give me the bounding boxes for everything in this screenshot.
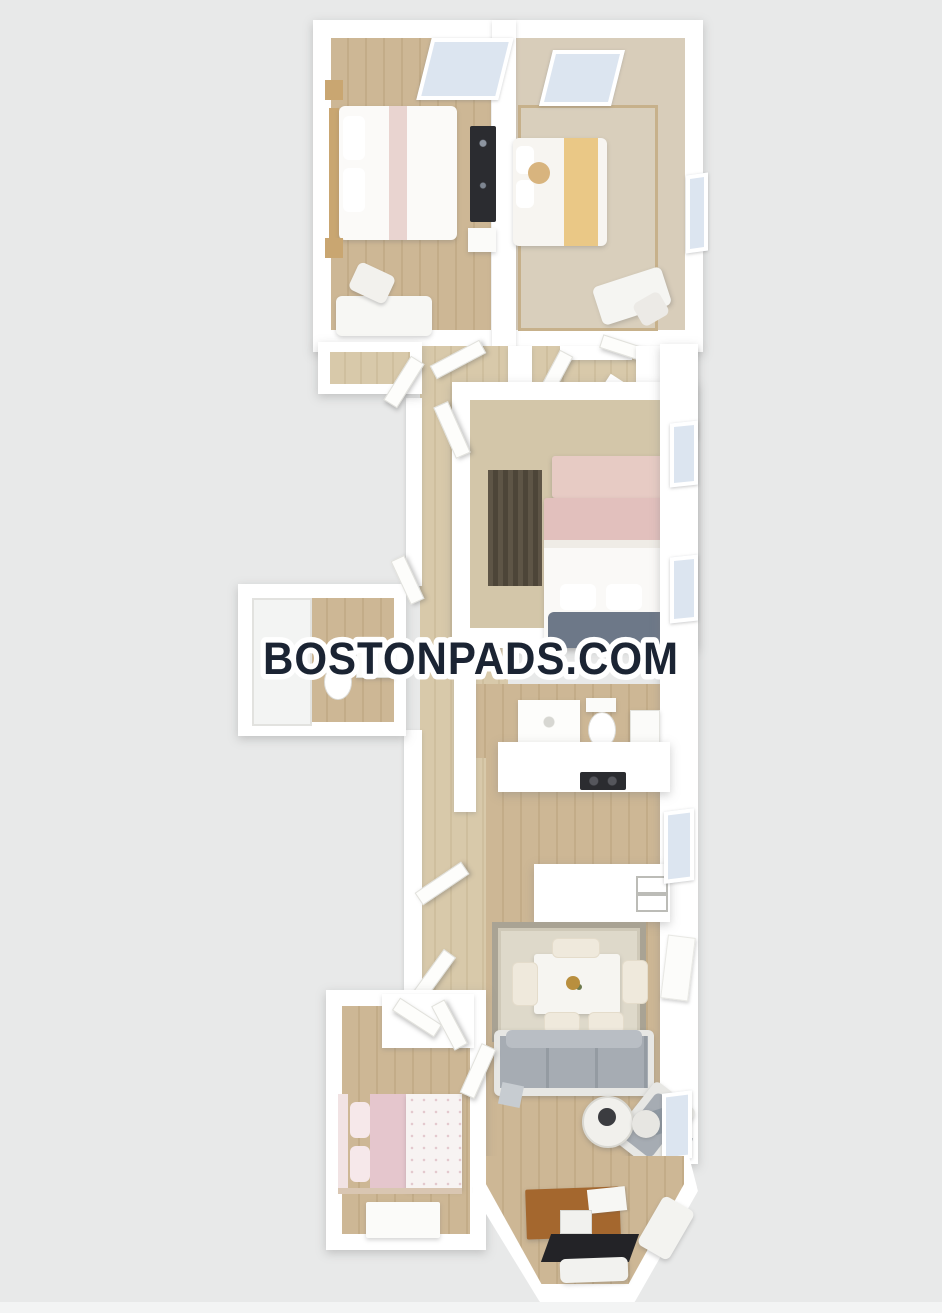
- bedroom3-dark-closet: [488, 470, 542, 586]
- nightstand: [325, 238, 343, 258]
- bed1-runner-blanket: [389, 106, 407, 240]
- bed4-headboard: [338, 1094, 348, 1190]
- window: [686, 172, 708, 253]
- bed4-footboard: [338, 1188, 462, 1194]
- table-flowers: [566, 976, 580, 990]
- throw-pillow: [498, 1082, 524, 1108]
- bed1-headboard: [329, 108, 339, 238]
- bed1-pillow: [343, 168, 365, 212]
- corridor-left-wall: [406, 398, 422, 586]
- skylight-window-bedroom2: [539, 50, 625, 106]
- desk-chair: [560, 1257, 629, 1283]
- bed3-pillow: [606, 584, 642, 610]
- sofa-back-pillows: [506, 1030, 642, 1048]
- bed2-round-cushion: [528, 162, 550, 184]
- skylight-window-bedroom1: [416, 38, 513, 100]
- bedroom4-dresser: [366, 1202, 440, 1238]
- cooktop-stove: [580, 772, 626, 790]
- dining-chair: [512, 962, 538, 1006]
- corridor-left-wall: [404, 730, 422, 992]
- bed1-pillow: [343, 116, 365, 160]
- bed4-duvet: [406, 1094, 462, 1190]
- nightstand: [325, 80, 343, 100]
- bed3-headboard: [544, 498, 672, 544]
- watermark: BOSTONPADS.COM BOSTONPADS.COM: [251, 628, 691, 692]
- bed3-pillow: [560, 584, 596, 610]
- toilet2-tank: [586, 698, 616, 712]
- side-table: [632, 1110, 660, 1138]
- bedroom3-dresser: [552, 456, 664, 498]
- desk-laptop: [560, 1210, 592, 1234]
- bed4-pink-blanket: [370, 1094, 406, 1190]
- coffee-table-tray: [598, 1108, 616, 1126]
- tv-stand: [468, 228, 496, 252]
- bed2-pillow: [516, 180, 534, 208]
- bed4-pillow: [350, 1102, 370, 1138]
- bed3-sheet-fold: [544, 540, 672, 548]
- watermark-text: BOSTONPADS.COM: [263, 633, 679, 684]
- window: [670, 421, 698, 488]
- window: [664, 808, 694, 884]
- tv-media-panel: [470, 126, 496, 222]
- dining-chair: [622, 960, 648, 1004]
- dining-chair: [552, 938, 600, 958]
- bathroom-vanity-sink: [518, 700, 580, 744]
- bottom-edge-strip: [0, 1302, 942, 1313]
- bed2-yellow-blanket: [564, 138, 598, 246]
- floorplan-image: BOSTONPADS.COM BOSTONPADS.COM: [0, 0, 942, 1313]
- window: [670, 555, 698, 624]
- desk-papers: [587, 1186, 627, 1214]
- bed4-pillow: [350, 1146, 370, 1182]
- window: [662, 1090, 692, 1162]
